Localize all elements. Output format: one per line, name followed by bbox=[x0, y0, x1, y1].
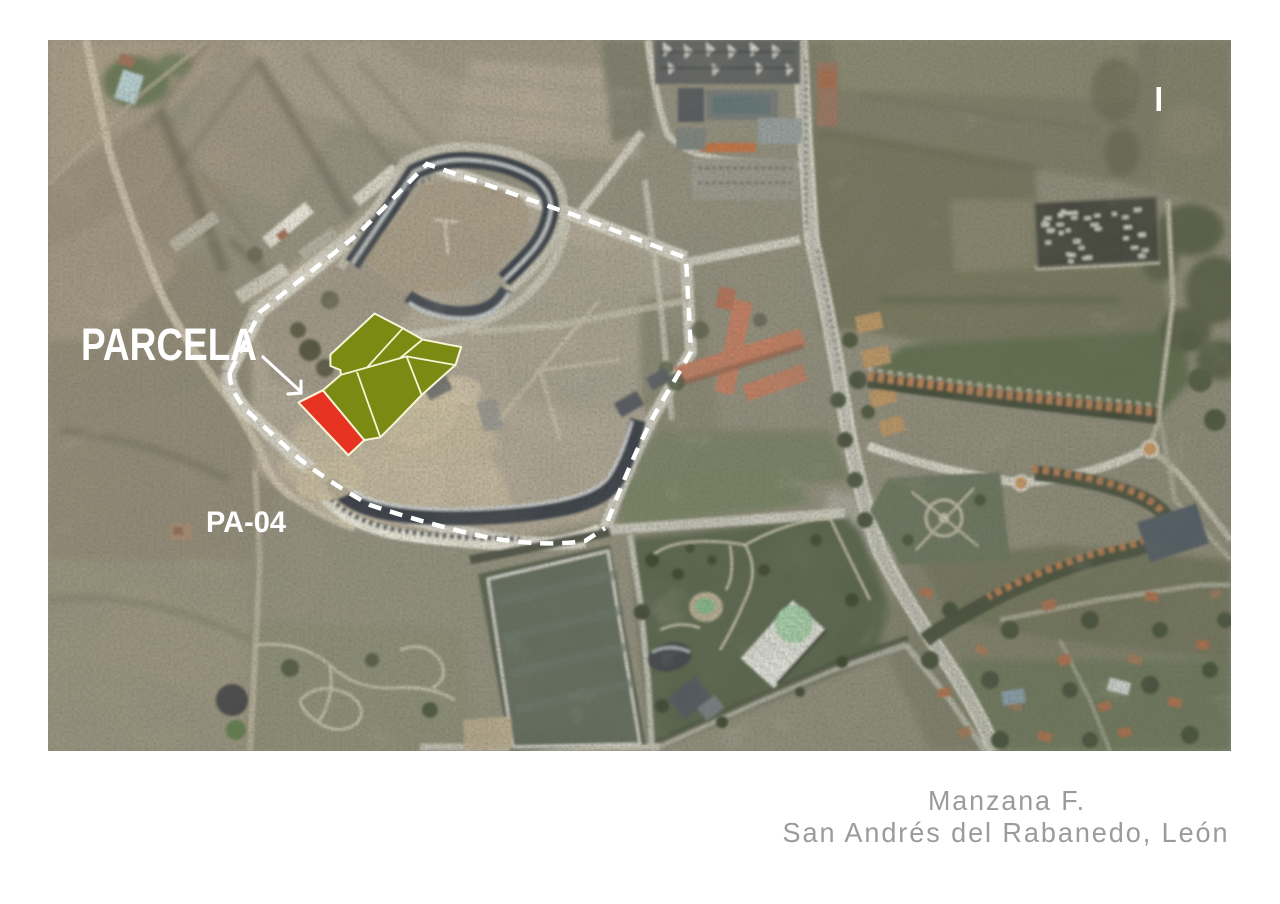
svg-text:PA-04: PA-04 bbox=[206, 506, 286, 539]
svg-text:PARCELA: PARCELA bbox=[81, 319, 257, 370]
svg-text:Manzana F.: Manzana F. bbox=[928, 785, 1086, 816]
svg-text:San Andrés del Rabanedo, León: San Andrés del Rabanedo, León bbox=[783, 817, 1230, 848]
